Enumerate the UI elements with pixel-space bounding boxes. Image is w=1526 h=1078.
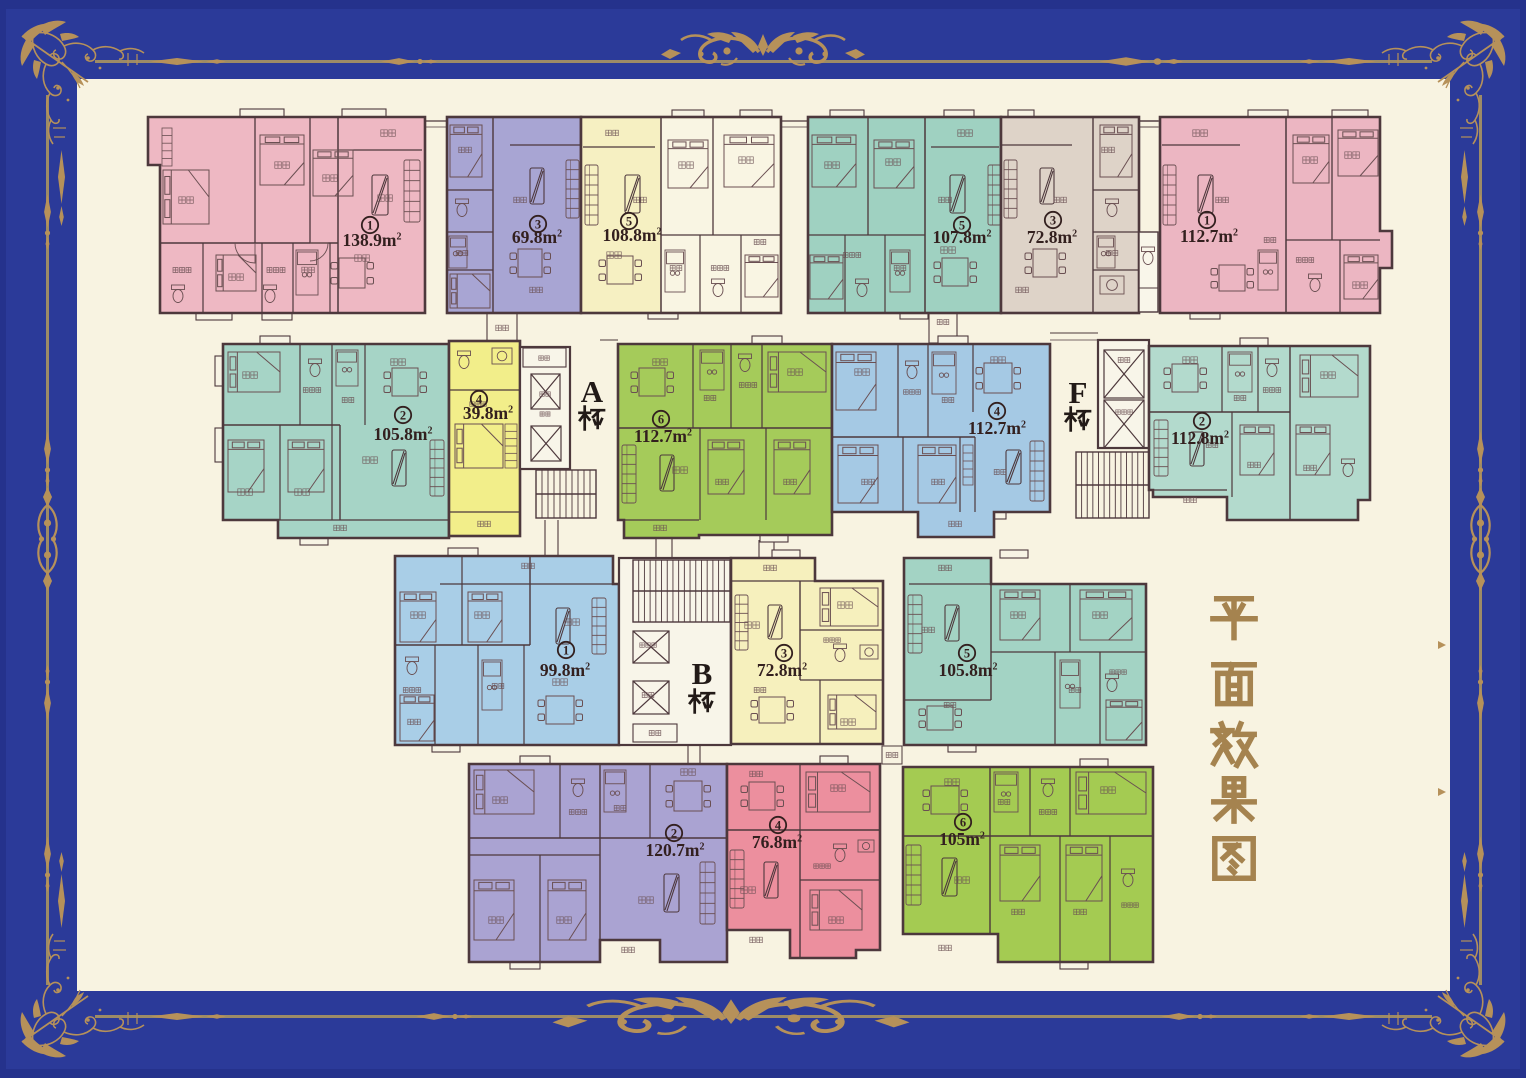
svg-text:3: 3	[1050, 214, 1056, 228]
svg-text:6: 6	[960, 816, 966, 830]
svg-text:3: 3	[781, 647, 787, 661]
svg-text:1: 1	[563, 644, 569, 658]
svg-text:4: 4	[775, 819, 782, 833]
svg-text:105m2: 105m2	[939, 829, 985, 849]
svg-text:A: A	[581, 374, 604, 409]
svg-text:2: 2	[400, 409, 406, 423]
svg-text:72.8m2: 72.8m2	[757, 660, 807, 680]
svg-text:99.8m2: 99.8m2	[540, 660, 590, 680]
svg-text:105.8m2: 105.8m2	[374, 424, 433, 444]
svg-text:69.8m2: 69.8m2	[512, 227, 562, 247]
svg-text:112.8m2: 112.8m2	[1171, 428, 1229, 448]
svg-text:112.7m2: 112.7m2	[968, 418, 1026, 438]
svg-text:5: 5	[964, 647, 970, 661]
svg-text:112.7m2: 112.7m2	[1180, 226, 1238, 246]
svg-text:6: 6	[658, 413, 664, 427]
svg-text:F: F	[1069, 375, 1088, 410]
svg-text:108.8m2: 108.8m2	[603, 225, 662, 245]
svg-text:39.8m2: 39.8m2	[463, 403, 513, 423]
svg-text:2: 2	[671, 827, 677, 841]
svg-text:4: 4	[994, 405, 1001, 419]
svg-text:B: B	[692, 656, 713, 691]
svg-text:76.8m2: 76.8m2	[752, 832, 802, 852]
svg-text:120.7m2: 120.7m2	[646, 840, 705, 860]
svg-text:112.7m2: 112.7m2	[634, 426, 692, 446]
svg-text:2: 2	[1199, 415, 1205, 429]
svg-text:107.8m2: 107.8m2	[933, 227, 992, 247]
svg-text:138.9m2: 138.9m2	[343, 230, 402, 250]
svg-text:105.8m2: 105.8m2	[939, 660, 998, 680]
svg-text:72.8m2: 72.8m2	[1027, 227, 1077, 247]
